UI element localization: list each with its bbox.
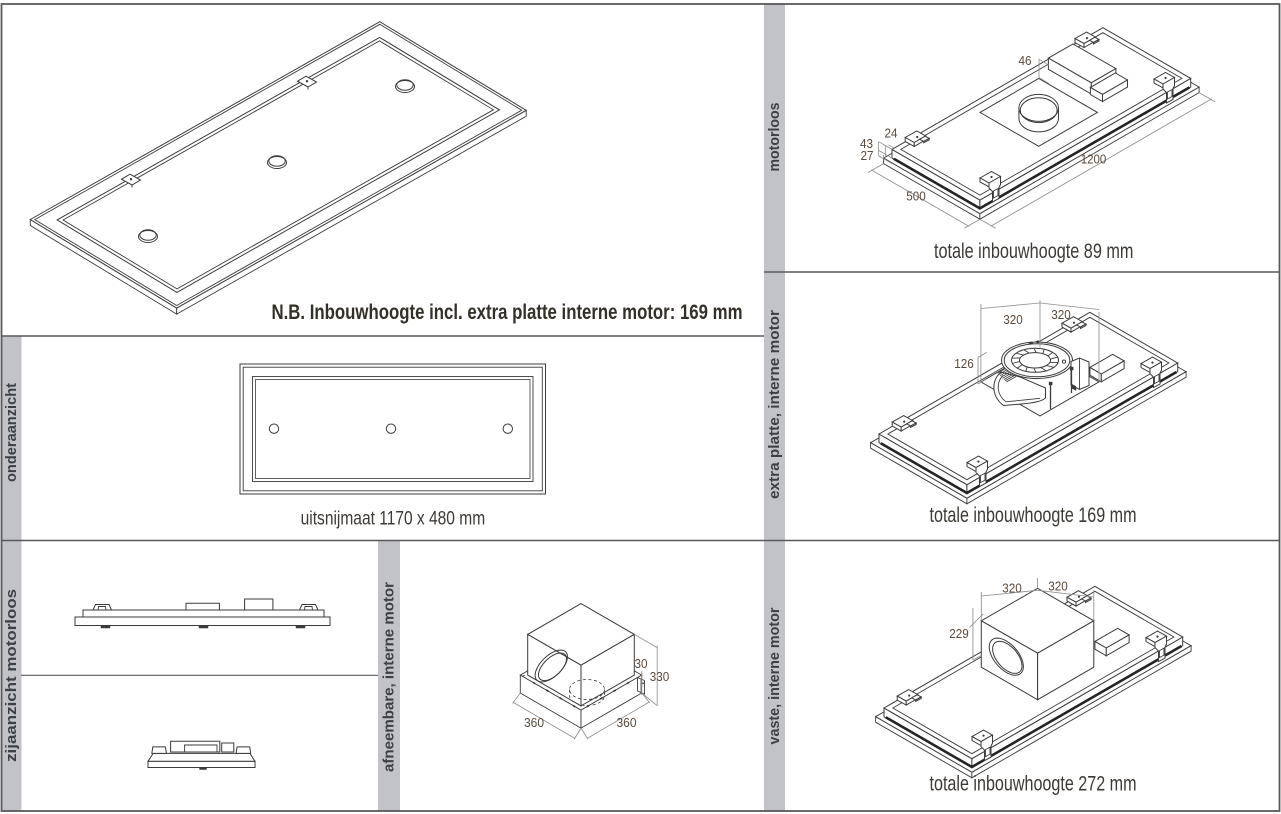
svg-text:zijaanzicht motorloos: zijaanzicht motorloos [3, 589, 20, 762]
svg-text:totale inbouwhoogte 89 mm: totale inbouwhoogte 89 mm [934, 240, 1134, 263]
svg-text:N.B. Inbouwhoogte incl. extra: N.B. Inbouwhoogte incl. extra platte int… [272, 301, 743, 324]
svg-text:500: 500 [906, 189, 926, 203]
svg-text:330: 330 [650, 670, 670, 684]
svg-text:onderaanzicht: onderaanzicht [3, 383, 20, 482]
svg-text:360: 360 [524, 716, 544, 730]
svg-text:24: 24 [885, 126, 898, 140]
svg-text:extra platte, interne motor: extra platte, interne motor [766, 310, 783, 499]
svg-text:27: 27 [861, 149, 874, 163]
svg-text:320: 320 [1051, 308, 1071, 322]
svg-text:360: 360 [617, 716, 637, 730]
svg-text:1200: 1200 [1081, 153, 1107, 167]
svg-text:30: 30 [635, 657, 648, 671]
svg-text:320: 320 [1002, 581, 1022, 595]
svg-text:motorloos: motorloos [766, 103, 783, 172]
svg-text:320: 320 [1048, 579, 1068, 593]
svg-text:afneembare, interne motor: afneembare, interne motor [381, 582, 398, 772]
svg-text:totale inbouwhoogte 272 mm: totale inbouwhoogte 272 mm [930, 773, 1137, 796]
svg-text:totale inbouwhoogte 169 mm: totale inbouwhoogte 169 mm [930, 504, 1137, 527]
svg-text:46: 46 [1019, 54, 1032, 68]
svg-text:uitsnijmaat 1170 x 480 mm: uitsnijmaat 1170 x 480 mm [301, 508, 486, 530]
svg-text:vaste, interne motor: vaste, interne motor [766, 607, 783, 744]
svg-text:229: 229 [949, 627, 969, 641]
svg-text:126: 126 [954, 357, 974, 371]
svg-text:320: 320 [1003, 313, 1023, 327]
